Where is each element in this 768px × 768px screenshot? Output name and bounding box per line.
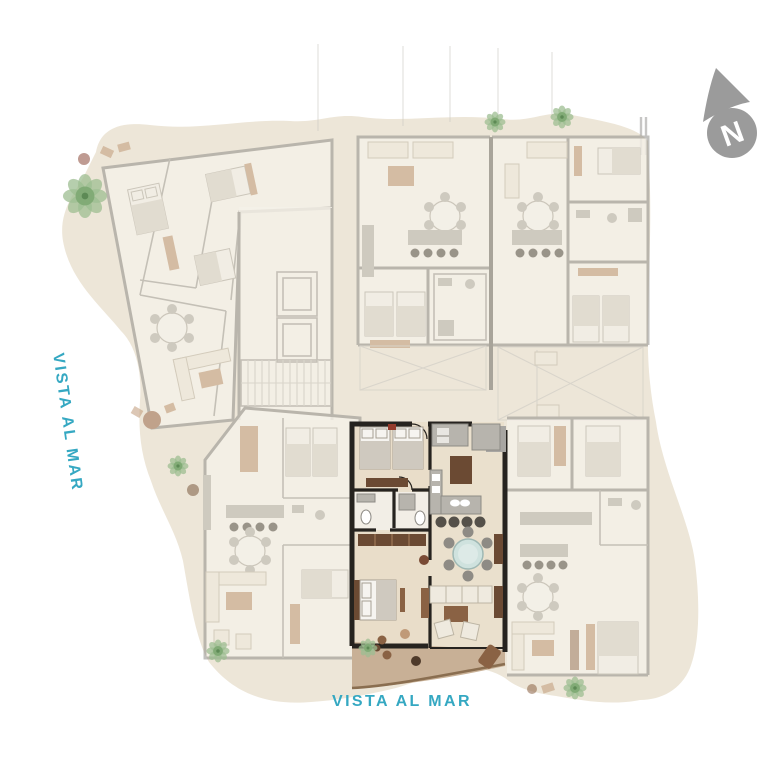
bottom-left-unit <box>203 408 360 658</box>
tree-icon <box>550 105 573 128</box>
tree-icon <box>485 112 506 133</box>
sea-view-label-bottom: VISTA AL MAR <box>332 693 472 711</box>
top-unit-left <box>358 137 490 348</box>
tree-icon <box>168 456 189 477</box>
tree-icon <box>206 639 229 662</box>
tree-icon <box>359 639 378 658</box>
tree-icon <box>563 676 586 699</box>
floorplan-page: N VISTA AL MAR VISTA AL MAR <box>0 0 768 768</box>
site-plan-canvas: N <box>0 0 768 768</box>
tree-icon <box>63 174 107 218</box>
bottom-right-unit <box>507 418 648 694</box>
north-indicator: N <box>703 68 757 158</box>
core-elevators-stairs <box>239 207 332 420</box>
